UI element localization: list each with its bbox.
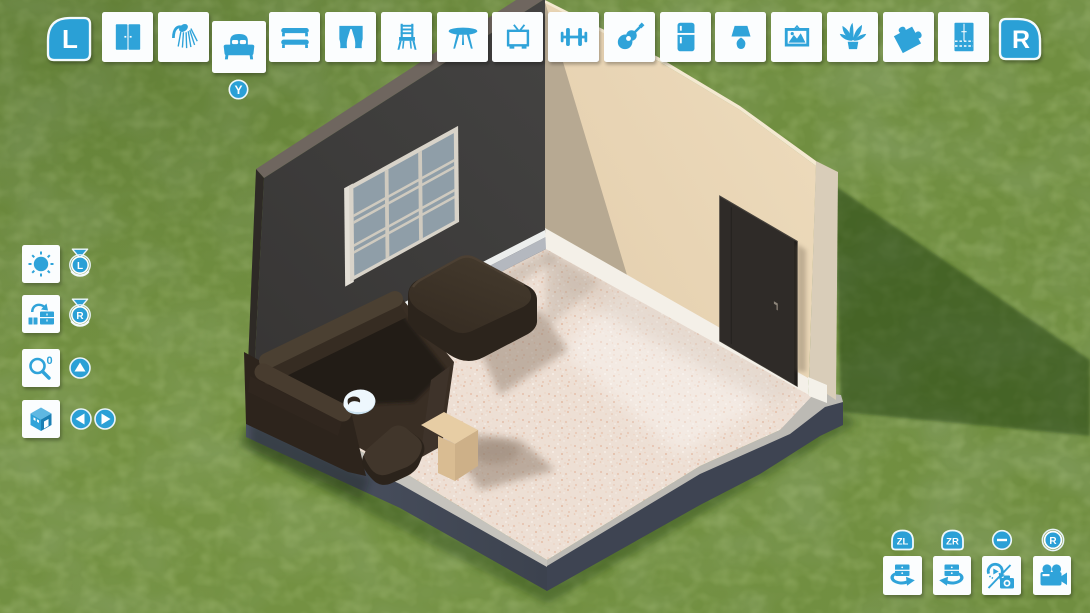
svg-text:R: R	[1012, 26, 1030, 54]
svg-text:R: R	[76, 311, 84, 322]
svg-text:L: L	[77, 261, 83, 272]
svg-text:0: 0	[46, 355, 52, 367]
svg-text:Y: Y	[234, 83, 242, 97]
svg-text:R: R	[1049, 536, 1057, 547]
svg-text:ZL: ZL	[897, 537, 909, 548]
svg-text:ZR: ZR	[946, 537, 959, 548]
svg-text:L: L	[62, 24, 78, 54]
